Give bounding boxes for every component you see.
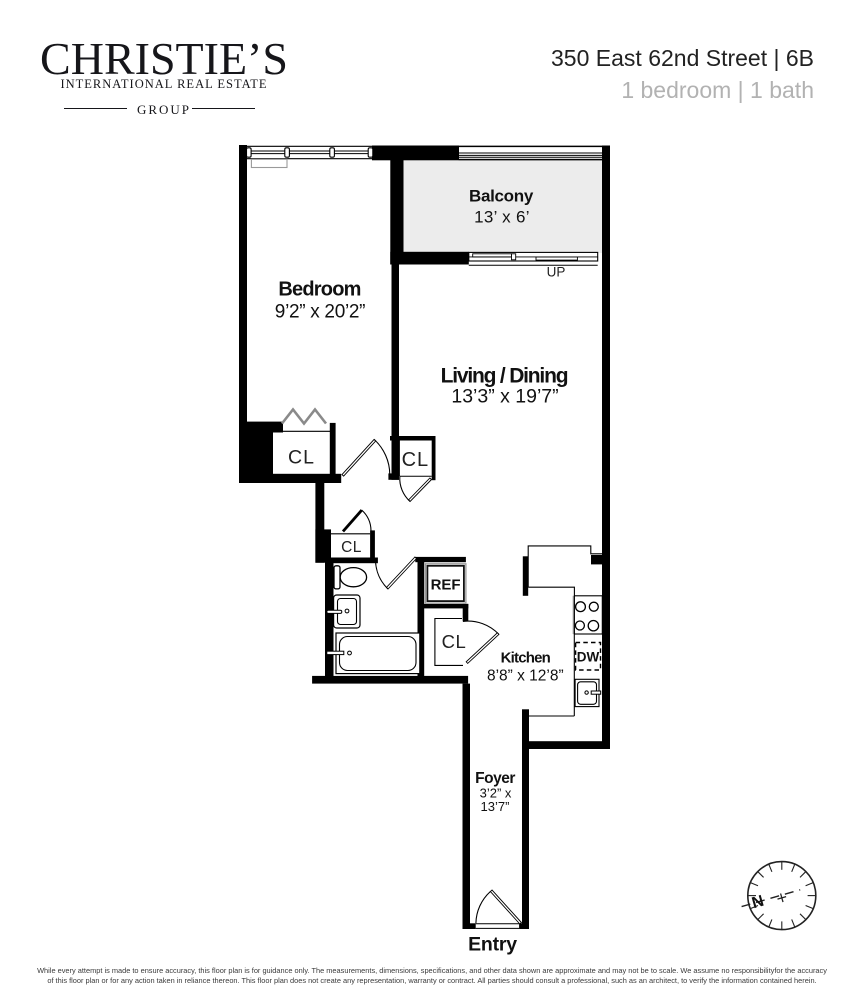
svg-text:REF: REF	[431, 577, 461, 594]
svg-text:Bedroom: Bedroom	[278, 279, 360, 301]
svg-text:13’ x 6’: 13’ x 6’	[474, 208, 530, 227]
svg-text:UP: UP	[547, 265, 566, 280]
svg-text:Entry: Entry	[468, 934, 517, 956]
svg-text:8’8” x 12’8”: 8’8” x 12’8”	[487, 668, 564, 685]
svg-text:CL: CL	[402, 449, 430, 471]
svg-text:Foyer: Foyer	[475, 770, 515, 787]
svg-text:Balcony: Balcony	[469, 187, 534, 206]
svg-text:N: N	[750, 893, 766, 913]
svg-text:Living / Dining: Living / Dining	[441, 365, 568, 388]
svg-text:CL: CL	[442, 631, 467, 652]
svg-text:13’7”: 13’7”	[481, 799, 510, 814]
svg-text:9’2” x 20’2”: 9’2” x 20’2”	[275, 302, 365, 323]
svg-text:DW: DW	[577, 650, 600, 665]
svg-text:CL: CL	[341, 539, 362, 556]
svg-text:13’3” x 19’7”: 13’3” x 19’7”	[451, 386, 558, 408]
svg-text:Kitchen: Kitchen	[501, 650, 551, 667]
svg-text:CL: CL	[288, 447, 315, 469]
